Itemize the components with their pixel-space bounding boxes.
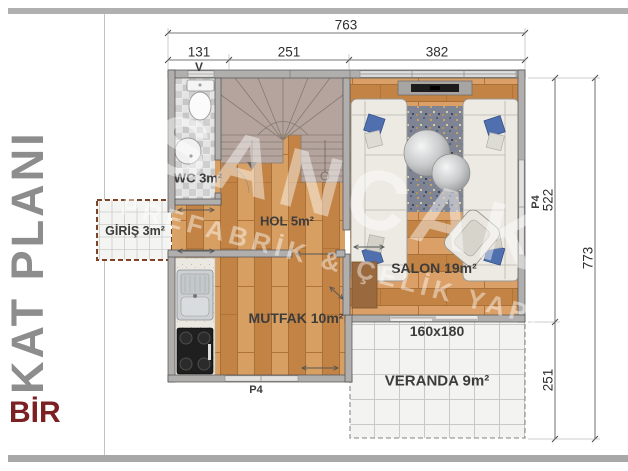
p4-bottom-label: P4 [249, 384, 262, 396]
giris-label: GİRİŞ 3m² [105, 224, 165, 238]
sliding-door-size-label: 160x180 [410, 323, 465, 339]
wc-label: WC 3m² [174, 171, 222, 186]
doormat [352, 262, 377, 308]
coffee-table [432, 154, 470, 192]
dim-right-upper: 522 [541, 189, 556, 212]
salon-right-window-p4 [519, 160, 524, 255]
hol-label: HOL 5m² [260, 214, 314, 229]
veranda-label: VERANDA 9m² [385, 373, 489, 390]
mutfak-label: MUTFAK 10m² [249, 310, 344, 326]
dim-right-lower: 251 [541, 369, 556, 392]
kitchen-fixtures [175, 258, 215, 375]
wc-sink [175, 138, 201, 164]
salon-label: SALON 19m² [391, 260, 477, 276]
cooktop-panel [208, 344, 211, 360]
dim-right-total: 773 [581, 247, 596, 270]
toilet-bowl [189, 92, 211, 120]
floor-plan-drawing [0, 0, 628, 471]
left-sofa [351, 99, 407, 281]
dim-total-width: 763 [335, 18, 358, 33]
entrance-threshold [172, 212, 178, 252]
p4-right-label: P4 [530, 195, 542, 208]
sink-bowl [181, 297, 209, 316]
sink-faucet [193, 294, 197, 298]
dim-seg3: 382 [426, 45, 449, 60]
kitchen-window-p4 [225, 376, 298, 381]
vent-label: V [195, 60, 203, 74]
floor-plan-page: KAT PLANI BİR [0, 0, 628, 471]
dim-seg1: 131 [188, 45, 211, 60]
dim-seg2: 251 [278, 45, 301, 60]
